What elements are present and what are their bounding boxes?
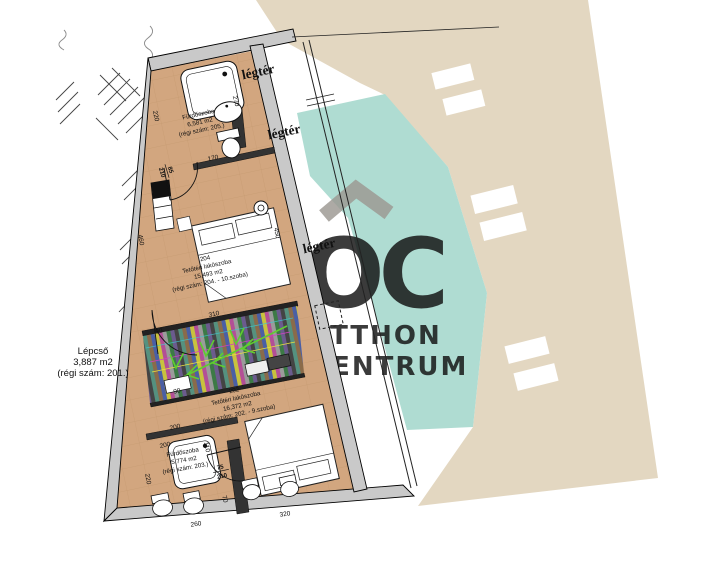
floorplan-page: OC OTTHON CENTRUM	[0, 0, 715, 561]
floor-plan-svg: OC OTTHON CENTRUM	[0, 0, 715, 561]
svg-text:Lépcső: Lépcső	[78, 346, 109, 357]
svg-text:260: 260	[190, 520, 202, 528]
svg-text:(régi szám: 201.): (régi szám: 201.)	[57, 368, 128, 379]
round-table	[254, 201, 268, 215]
label-staircase: Lépcső 3,887 m2 (régi szám: 201.)	[57, 346, 128, 379]
svg-text:320: 320	[279, 510, 291, 518]
svg-text:3,887 m2: 3,887 m2	[73, 357, 113, 368]
